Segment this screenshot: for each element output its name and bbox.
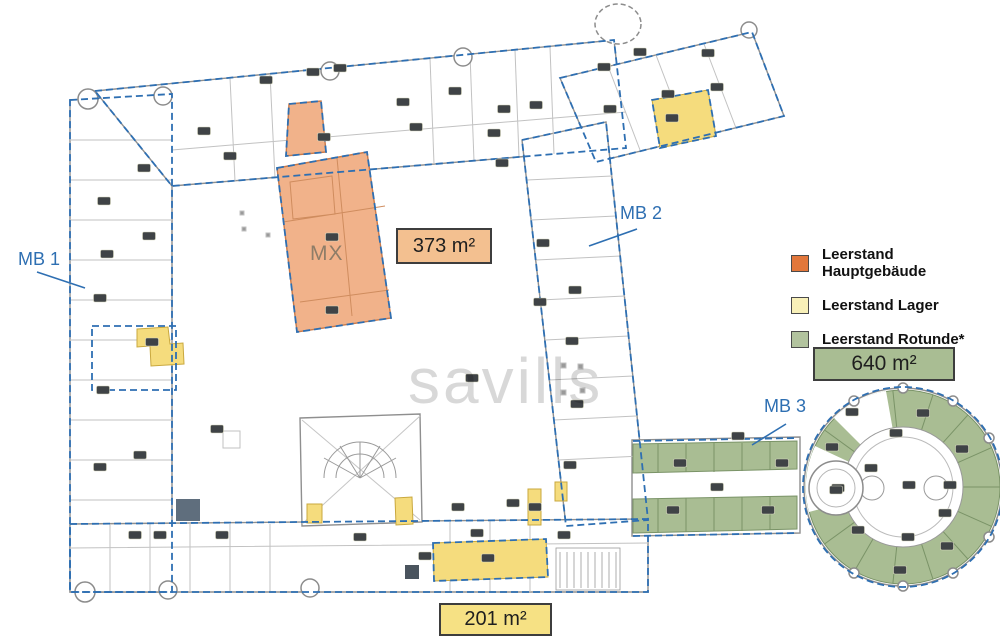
room-badge	[471, 529, 484, 537]
room-badge	[134, 451, 147, 459]
room-badge	[452, 503, 465, 511]
room-badge	[260, 76, 273, 84]
room-badge	[826, 443, 839, 451]
marker-mb1: MB 1	[18, 249, 60, 270]
area-label-hauptgebaeude: 373 m²	[396, 228, 492, 264]
room-badge	[558, 531, 571, 539]
room-badge	[138, 164, 151, 172]
room-badge	[762, 506, 775, 514]
legend-label: Leerstand Lager	[822, 297, 939, 314]
room-badge	[496, 159, 509, 167]
room-badge	[307, 68, 320, 76]
room-badge	[530, 101, 543, 109]
room-badge	[529, 503, 542, 511]
room-badge	[634, 48, 647, 56]
legend-item-hauptgebaeude: Leerstand Hauptgebäude	[791, 246, 996, 280]
marker-mb2: MB 2	[620, 203, 662, 224]
legend-label: Leerstand Hauptgebäude	[822, 246, 996, 280]
room-badge	[917, 409, 930, 417]
room-badge	[449, 87, 462, 95]
room-badge	[318, 133, 331, 141]
legend-item-lager: Leerstand Lager	[791, 297, 996, 314]
room-badge	[852, 526, 865, 534]
room-badge	[902, 533, 915, 541]
room-badge	[143, 232, 156, 240]
room-badge	[154, 531, 167, 539]
room-badge	[865, 464, 878, 472]
room-badge	[903, 481, 916, 489]
room-badge	[537, 239, 550, 247]
room-badge	[564, 461, 577, 469]
room-badge	[101, 250, 114, 258]
room-badge	[569, 286, 582, 294]
area-label-lager: 201 m²	[439, 603, 552, 636]
legend-item-rotunde: Leerstand Rotunde*	[791, 331, 996, 348]
room-badge	[604, 105, 617, 113]
room-badge	[326, 233, 339, 241]
room-badge	[666, 114, 679, 122]
room-badge	[216, 531, 229, 539]
room-badge	[224, 152, 237, 160]
room-badge	[598, 63, 611, 71]
room-badge	[129, 531, 142, 539]
room-badge	[956, 445, 969, 453]
room-badge	[410, 123, 423, 131]
room-badge	[498, 105, 511, 113]
savills-watermark: savills	[408, 344, 603, 418]
room-badge	[711, 83, 724, 91]
room-badge	[776, 459, 789, 467]
legend: Leerstand Hauptgebäude Leerstand Lager L…	[791, 246, 996, 365]
room-badge	[397, 98, 410, 106]
room-badge	[198, 127, 211, 135]
floor-plan: savills MX MB 1 MB 2 MB 3 373 m² 640 m² …	[0, 0, 1000, 641]
room-badge	[674, 459, 687, 467]
legend-swatch-yellow	[791, 297, 809, 314]
room-badge	[732, 432, 745, 440]
room-badge	[97, 386, 110, 394]
room-badge	[702, 49, 715, 57]
legend-swatch-green	[791, 331, 809, 348]
room-badge	[534, 298, 547, 306]
room-badge	[211, 425, 224, 433]
room-badge	[94, 294, 107, 302]
room-badge	[146, 338, 159, 346]
legend-label: Leerstand Rotunde*	[822, 331, 965, 348]
room-badge	[488, 129, 501, 137]
room-badge	[667, 506, 680, 514]
marker-mb3: MB 3	[764, 396, 806, 417]
room-badge	[507, 499, 520, 507]
room-badge	[894, 566, 907, 574]
room-badge	[939, 509, 952, 517]
room-badge	[830, 486, 843, 494]
room-badge	[941, 542, 954, 550]
room-badge	[846, 408, 859, 416]
room-badge	[334, 64, 347, 72]
room-badge	[890, 429, 903, 437]
room-badge	[482, 554, 495, 562]
legend-swatch-orange	[791, 255, 809, 272]
room-badge	[326, 306, 339, 314]
room-badge	[94, 463, 107, 471]
room-badge	[354, 533, 367, 541]
room-badge	[98, 197, 111, 205]
room-badge	[944, 481, 957, 489]
room-badge	[419, 552, 432, 560]
mx-building-label: MX	[310, 242, 344, 266]
room-badge	[711, 483, 724, 491]
room-badge	[662, 90, 675, 98]
